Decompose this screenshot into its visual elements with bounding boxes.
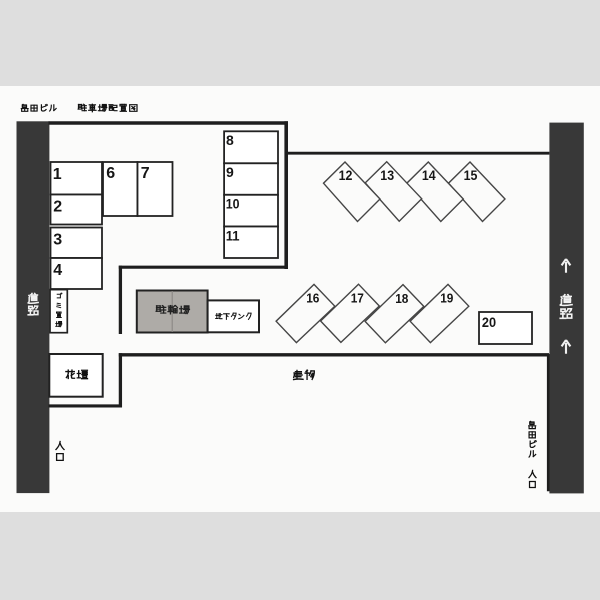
- svg-text:12: 12: [339, 168, 353, 183]
- svg-text:7: 7: [141, 165, 150, 182]
- svg-text:4: 4: [53, 262, 62, 279]
- svg-text:16: 16: [306, 291, 319, 306]
- svg-text:2: 2: [53, 198, 62, 215]
- svg-text:6: 6: [106, 165, 115, 182]
- svg-text:18: 18: [395, 291, 408, 306]
- svg-text:13: 13: [380, 168, 394, 183]
- svg-text:10: 10: [226, 196, 240, 212]
- svg-text:9: 9: [226, 164, 234, 180]
- svg-text:11: 11: [226, 227, 240, 243]
- svg-text:19: 19: [440, 291, 453, 306]
- svg-text:17: 17: [351, 291, 364, 306]
- svg-text:3: 3: [53, 232, 62, 249]
- svg-text:14: 14: [422, 168, 436, 183]
- svg-text:20: 20: [482, 314, 496, 330]
- svg-text:8: 8: [226, 132, 234, 148]
- svg-text:15: 15: [464, 168, 478, 183]
- svg-text:1: 1: [53, 166, 62, 183]
